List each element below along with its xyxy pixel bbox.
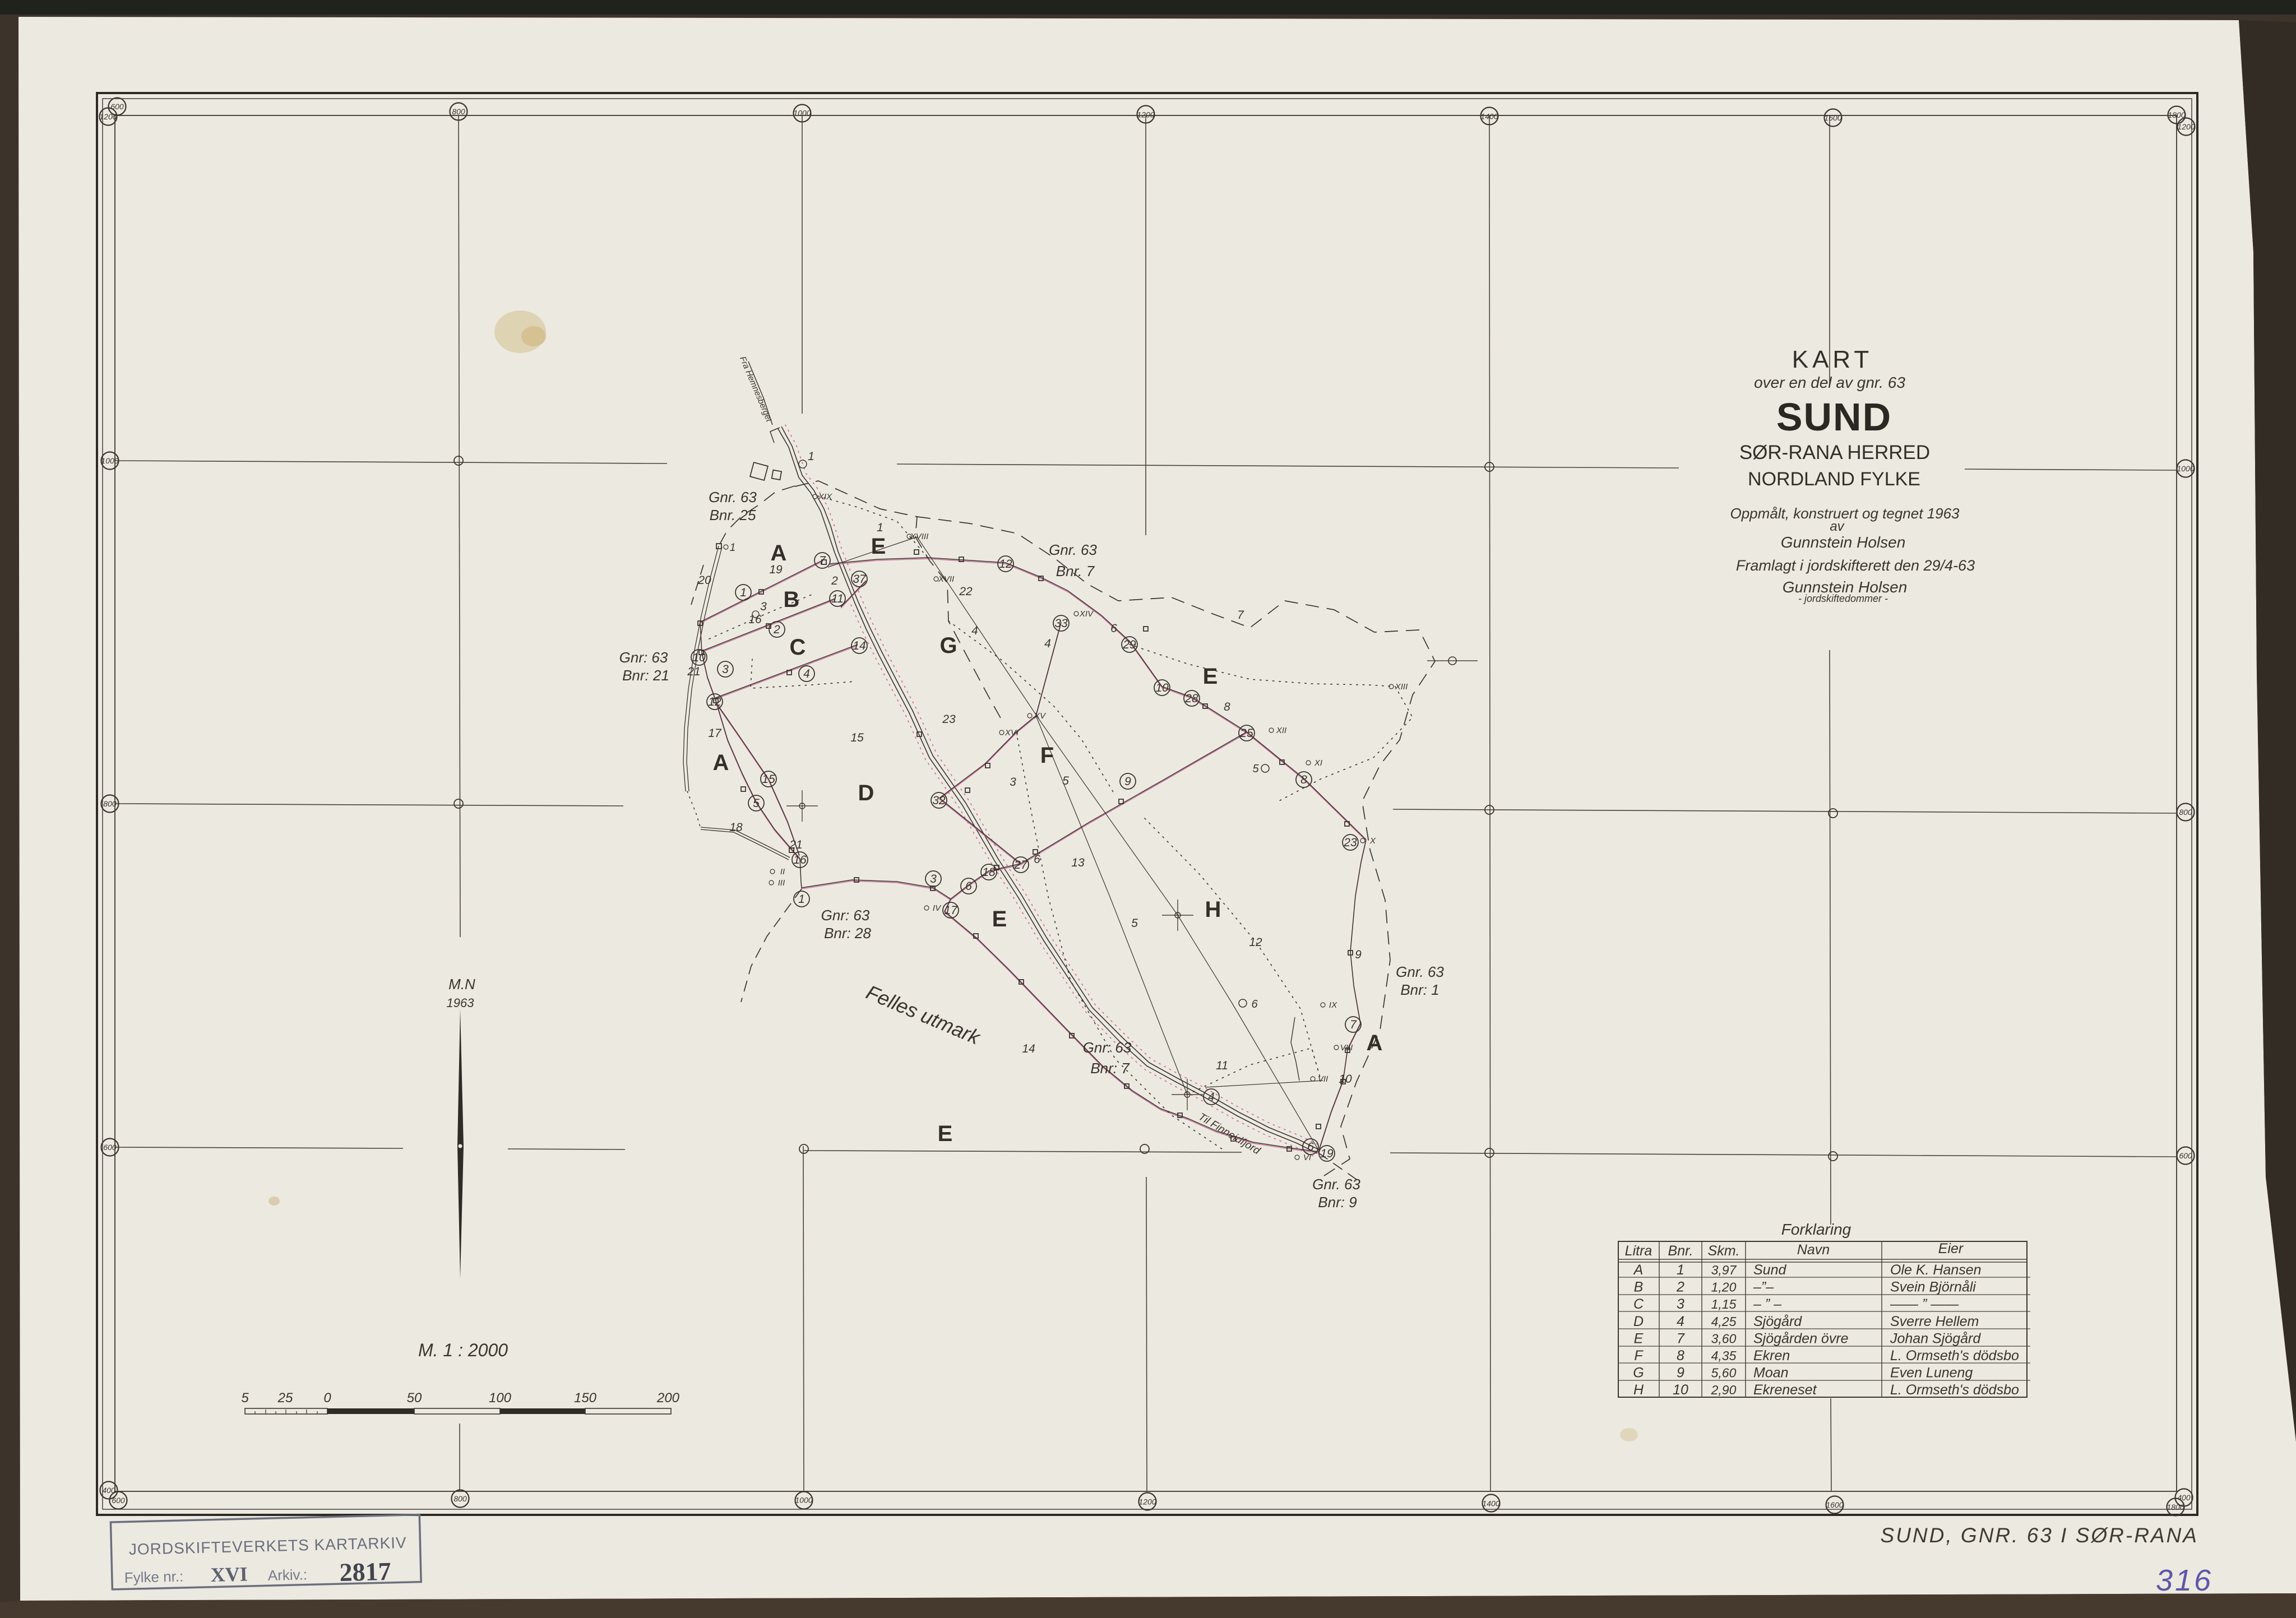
svg-text:5: 5 [241, 1390, 249, 1406]
svg-text:18: 18 [982, 866, 996, 879]
svg-text:Sjögård: Sjögård [1753, 1314, 1802, 1329]
svg-text:5,60: 5,60 [1711, 1366, 1737, 1380]
svg-text:800: 800 [452, 107, 465, 116]
svg-text:7: 7 [1350, 1018, 1357, 1031]
svg-text:19: 19 [769, 563, 783, 576]
svg-text:Bnr: 21: Bnr: 21 [622, 667, 669, 684]
svg-text:XV: XV [1034, 711, 1047, 721]
svg-text:Gnr: 63: Gnr: 63 [1083, 1039, 1132, 1056]
svg-text:E: E [871, 534, 886, 559]
svg-text:1000: 1000 [793, 109, 811, 118]
svg-text:28: 28 [1184, 692, 1198, 705]
svg-text:21: 21 [687, 665, 700, 678]
svg-text:L. Ormseth's dödsbo: L. Ormseth's dödsbo [1890, 1348, 2019, 1364]
svg-text:XVII: XVII [938, 574, 954, 584]
svg-text:2: 2 [831, 574, 838, 587]
svg-text:E: E [1203, 664, 1218, 689]
svg-text:1400: 1400 [1480, 112, 1498, 120]
svg-text:1: 1 [798, 893, 805, 906]
svg-text:SØR-RANA HERRED: SØR-RANA HERRED [1739, 442, 1930, 463]
svg-text:L. Ormseth's dödsbo: L. Ormseth's dödsbo [1890, 1382, 2019, 1398]
svg-text:10: 10 [1673, 1382, 1688, 1398]
svg-text:13: 13 [1071, 856, 1085, 869]
svg-text:Ekreneset: Ekreneset [1753, 1382, 1817, 1398]
svg-text:1000: 1000 [2177, 464, 2194, 473]
svg-text:10: 10 [1155, 681, 1169, 694]
svg-text:4: 4 [971, 624, 978, 637]
svg-text:Bnr.: Bnr. [1668, 1243, 1693, 1259]
svg-text:3: 3 [930, 873, 937, 886]
svg-text:Gnr. 63: Gnr. 63 [1049, 541, 1097, 558]
svg-text:25: 25 [277, 1390, 293, 1406]
svg-text:17: 17 [944, 904, 958, 917]
svg-text:over en del av gnr. 63: over en del av gnr. 63 [1754, 374, 1905, 391]
svg-text:4,35: 4,35 [1711, 1348, 1737, 1363]
svg-text:1: 1 [730, 542, 736, 554]
svg-text:23: 23 [1343, 836, 1357, 849]
svg-text:IX: IX [1329, 1000, 1337, 1010]
svg-text:14: 14 [853, 639, 865, 652]
svg-text:3,60: 3,60 [1711, 1331, 1737, 1346]
svg-text:A: A [713, 750, 729, 775]
svg-text:600: 600 [112, 1496, 125, 1505]
svg-text:E: E [938, 1121, 953, 1146]
svg-text:NORDLAND FYLKE: NORDLAND FYLKE [1748, 469, 1920, 490]
svg-text:2,90: 2,90 [1711, 1383, 1737, 1397]
svg-text:F: F [1634, 1348, 1644, 1364]
svg-text:Even Luneng: Even Luneng [1890, 1365, 1973, 1381]
svg-text:800: 800 [103, 799, 117, 808]
svg-text:III: III [778, 878, 785, 888]
svg-text:100: 100 [489, 1390, 512, 1406]
svg-text:XIV: XIV [1079, 609, 1094, 619]
svg-text:D: D [1633, 1314, 1644, 1329]
svg-text:15: 15 [762, 773, 775, 786]
svg-text:XVI: XVI [210, 1563, 248, 1586]
svg-text:1: 1 [877, 521, 883, 534]
svg-text:800: 800 [2179, 808, 2192, 817]
svg-text:20: 20 [697, 574, 711, 587]
svg-text:Eier: Eier [1938, 1241, 1964, 1257]
svg-text:1,15: 1,15 [1711, 1297, 1737, 1311]
svg-text:1: 1 [1677, 1262, 1684, 1278]
svg-text:Svein Björnåli: Svein Björnåli [1890, 1279, 1976, 1295]
svg-text:1963: 1963 [447, 996, 475, 1010]
svg-text:22: 22 [959, 585, 973, 598]
svg-text:1800: 1800 [2167, 1503, 2184, 1512]
svg-text:XII: XII [1276, 726, 1286, 735]
svg-text:3: 3 [1677, 1296, 1684, 1312]
svg-text:1200: 1200 [1138, 1497, 1156, 1506]
svg-text:19: 19 [1320, 1147, 1334, 1160]
svg-text:A: A [771, 541, 787, 565]
svg-text:Sverre Hellem: Sverre Hellem [1890, 1314, 1979, 1329]
svg-text:Gnr: 63: Gnr: 63 [619, 649, 668, 666]
svg-text:11: 11 [831, 592, 844, 605]
svg-text:0: 0 [323, 1390, 331, 1406]
svg-text:3: 3 [722, 663, 729, 676]
svg-text:Litra: Litra [1625, 1243, 1652, 1259]
svg-text:E: E [992, 907, 1007, 931]
svg-text:6: 6 [1034, 853, 1040, 866]
svg-text:Gnr. 63: Gnr. 63 [1312, 1176, 1360, 1193]
svg-text:– ” –: – ” – [1753, 1296, 1782, 1312]
svg-text:11: 11 [1216, 1059, 1228, 1072]
svg-text:Ole K. Hansen: Ole K. Hansen [1890, 1262, 1982, 1278]
svg-text:Bnr: 9: Bnr: 9 [1318, 1194, 1357, 1211]
svg-text:Forklaring: Forklaring [1781, 1221, 1851, 1238]
svg-text:5: 5 [1131, 917, 1138, 930]
svg-text:C: C [1633, 1296, 1644, 1312]
svg-text:Gnr: 63: Gnr: 63 [821, 907, 870, 924]
svg-text:IV: IV [933, 903, 942, 913]
svg-text:1: 1 [808, 450, 814, 463]
svg-text:B: B [784, 587, 800, 612]
svg-text:6: 6 [1251, 998, 1258, 1010]
svg-text:1000: 1000 [101, 456, 118, 465]
svg-text:Sjögården övre: Sjögården övre [1753, 1330, 1849, 1346]
svg-text:7: 7 [819, 554, 826, 567]
svg-text:Moan: Moan [1753, 1365, 1789, 1381]
svg-text:H: H [1633, 1382, 1644, 1398]
svg-text:XIX: XIX [818, 492, 832, 502]
svg-text:Gnr. 63: Gnr. 63 [709, 489, 757, 506]
svg-text:7: 7 [1677, 1330, 1685, 1346]
svg-text:Bnr: 1: Bnr: 1 [1400, 981, 1439, 998]
svg-text:33: 33 [1054, 617, 1068, 630]
svg-text:1200: 1200 [1137, 110, 1154, 119]
svg-text:4: 4 [1044, 637, 1051, 650]
svg-text:Bnr. 25: Bnr. 25 [710, 507, 756, 523]
svg-text:200: 200 [656, 1390, 680, 1406]
svg-text:4: 4 [1677, 1314, 1684, 1329]
svg-text:1200: 1200 [2177, 122, 2195, 131]
svg-text:5: 5 [1062, 775, 1069, 787]
svg-text:Sund: Sund [1753, 1262, 1786, 1278]
svg-text:—— ” ——: —— ” —— [1890, 1296, 1959, 1312]
svg-text:37: 37 [853, 573, 867, 586]
svg-text:18: 18 [729, 821, 743, 834]
svg-text:5: 5 [753, 797, 760, 810]
svg-text:2817: 2817 [339, 1557, 391, 1587]
svg-text:1000: 1000 [795, 1496, 812, 1505]
svg-text:21: 21 [789, 838, 802, 851]
svg-text:9: 9 [1677, 1365, 1684, 1381]
svg-text:27: 27 [1013, 859, 1028, 871]
svg-text:C: C [790, 635, 806, 660]
svg-text:SUND: SUND [1776, 395, 1892, 439]
svg-text:400: 400 [2177, 1493, 2191, 1502]
svg-text:3,97: 3,97 [1711, 1263, 1737, 1277]
svg-text:XVI: XVI [1004, 728, 1019, 738]
svg-text:4: 4 [1208, 1091, 1215, 1104]
svg-text:G: G [1633, 1365, 1644, 1381]
svg-text:12: 12 [1249, 936, 1262, 949]
svg-text:150: 150 [574, 1390, 597, 1406]
svg-text:XIII: XIII [1395, 682, 1408, 692]
svg-text:1: 1 [740, 586, 747, 599]
svg-text:15: 15 [850, 731, 864, 744]
svg-text:17: 17 [708, 727, 722, 740]
svg-text:Bnr: 28: Bnr: 28 [824, 925, 871, 942]
svg-text:3: 3 [1010, 776, 1016, 789]
svg-text:1400: 1400 [1482, 1499, 1499, 1508]
svg-text:6: 6 [1110, 622, 1117, 635]
svg-text:4,25: 4,25 [1711, 1314, 1737, 1329]
svg-text:9: 9 [1124, 775, 1131, 788]
svg-text:av: av [1830, 519, 1845, 534]
svg-text:E: E [1634, 1330, 1644, 1346]
svg-text:8: 8 [1677, 1348, 1684, 1364]
svg-text:1600: 1600 [1824, 113, 1841, 122]
svg-text:29: 29 [1122, 638, 1136, 651]
svg-text:M. 1 : 2000: M. 1 : 2000 [418, 1340, 508, 1360]
svg-text:SUND, GNR. 63 I SØR-RANA: SUND, GNR. 63 I SØR-RANA [1881, 1524, 2198, 1547]
svg-text:B: B [1634, 1279, 1644, 1295]
svg-text:Johan Sjögård: Johan Sjögård [1890, 1330, 1981, 1346]
svg-text:4: 4 [803, 667, 810, 680]
svg-text:XI: XI [1314, 758, 1322, 768]
svg-text:3: 3 [760, 600, 767, 613]
svg-text:50: 50 [407, 1390, 422, 1406]
svg-text:- jordskiftedommer -: - jordskiftedommer - [1798, 593, 1888, 604]
svg-text:M.N: M.N [448, 976, 475, 993]
svg-text:VI: VI [1303, 1153, 1311, 1162]
svg-text:Framlagt i jordskifterett den: Framlagt i jordskifterett den 29/4-63 [1736, 557, 1975, 574]
svg-text:A: A [1367, 1031, 1383, 1055]
svg-text:D: D [858, 781, 874, 805]
svg-text:5: 5 [1252, 763, 1259, 775]
svg-text:32: 32 [932, 794, 946, 807]
svg-text:Ekren: Ekren [1753, 1348, 1790, 1364]
svg-text:1,20: 1,20 [1711, 1280, 1737, 1295]
svg-text:XVIII: XVIII [910, 532, 929, 541]
svg-text:600: 600 [103, 1143, 117, 1152]
svg-text:Navn: Navn [1797, 1242, 1830, 1258]
svg-text:Fylke nr.:: Fylke nr.: [124, 1568, 183, 1586]
svg-text:16: 16 [748, 613, 762, 626]
svg-text:600: 600 [2179, 1151, 2192, 1160]
svg-text:1200: 1200 [99, 112, 117, 121]
svg-text:Gunnstein Holsen: Gunnstein Holsen [1781, 534, 1906, 551]
svg-text:H: H [1205, 897, 1221, 922]
svg-text:A: A [1633, 1262, 1644, 1278]
svg-text:2: 2 [773, 623, 780, 636]
svg-text:2: 2 [1676, 1279, 1684, 1295]
svg-text:8: 8 [1224, 701, 1230, 713]
svg-text:Oppmålt, konstruert og tegnet: Oppmålt, konstruert og tegnet 1963 [1730, 505, 1960, 522]
svg-text:12: 12 [708, 696, 721, 708]
svg-text:F: F [1040, 743, 1054, 768]
svg-text:KART: KART [1792, 346, 1873, 373]
svg-text:12: 12 [999, 558, 1012, 571]
svg-text:Skm.: Skm. [1708, 1243, 1740, 1259]
svg-text:Bnr: 7: Bnr: 7 [1090, 1060, 1130, 1077]
svg-text:1600: 1600 [1826, 1500, 1843, 1509]
svg-text:14: 14 [1022, 1042, 1035, 1055]
svg-text:II: II [780, 867, 785, 877]
svg-text:800: 800 [453, 1494, 467, 1503]
svg-text:16: 16 [793, 854, 807, 866]
svg-text:G: G [939, 633, 957, 658]
svg-text:8: 8 [1300, 773, 1307, 786]
svg-text:Bnr. 7: Bnr. 7 [1056, 563, 1095, 579]
svg-text:VII: VII [1318, 1074, 1328, 1084]
svg-text:Arkiv.:: Arkiv.: [267, 1566, 307, 1584]
svg-text:7: 7 [1237, 609, 1244, 622]
svg-text:9: 9 [1355, 948, 1362, 961]
svg-text:–”–: –”– [1753, 1279, 1774, 1295]
svg-text:6: 6 [1307, 1141, 1314, 1153]
svg-text:6: 6 [965, 880, 972, 893]
svg-text:316: 316 [2156, 1564, 2213, 1597]
svg-text:Gnr. 63: Gnr. 63 [1396, 963, 1444, 980]
svg-text:X: X [1369, 836, 1376, 846]
svg-text:25: 25 [1239, 727, 1253, 740]
svg-text:23: 23 [942, 713, 956, 726]
